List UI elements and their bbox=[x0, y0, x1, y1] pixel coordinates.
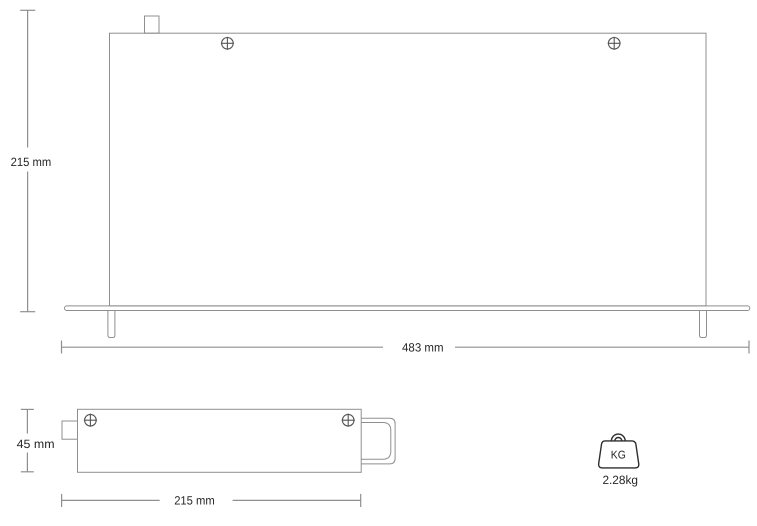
svg-text:215 mm: 215 mm bbox=[174, 494, 215, 508]
svg-text:45 mm: 45 mm bbox=[17, 437, 55, 451]
svg-text:KG: KG bbox=[611, 450, 626, 462]
svg-text:215 mm: 215 mm bbox=[11, 155, 52, 169]
svg-text:2.28kg: 2.28kg bbox=[602, 473, 638, 487]
svg-text:483 mm: 483 mm bbox=[402, 340, 444, 354]
